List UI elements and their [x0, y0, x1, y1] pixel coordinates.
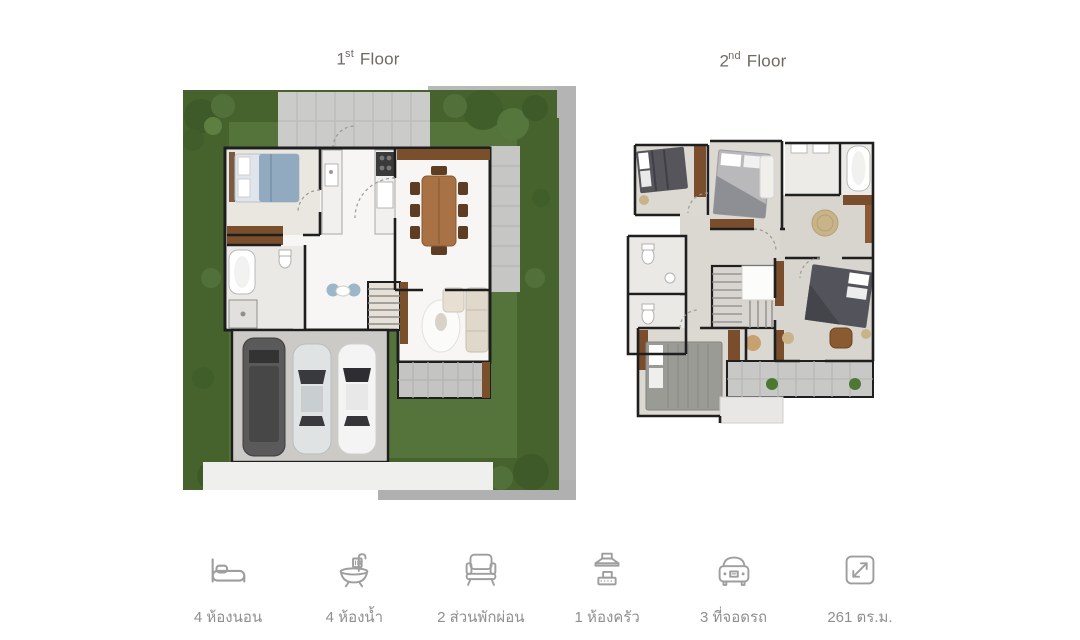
feature-parking: 3 ที่จอดรถ: [673, 547, 795, 629]
car-white: [338, 344, 376, 454]
second-floor-plan-drawing: [620, 138, 878, 433]
stairs-2f: [712, 266, 778, 328]
sofa-icon: [458, 547, 504, 593]
bathroom-2f-a: [628, 236, 686, 294]
lower-terrace: [720, 397, 783, 423]
hall-chair: [745, 335, 761, 351]
first-floor-suffix: st: [345, 48, 354, 60]
terrace: [398, 362, 490, 398]
bedroom-1: [227, 150, 320, 235]
feature-label: 4 ห้องน้ำ: [326, 605, 383, 629]
feature-label: 2 ส่วนพักผ่อน: [437, 605, 524, 629]
driveway-apron: [203, 462, 493, 490]
floorplan-page: 1st Floor 2nd Floor: [0, 0, 1080, 640]
feature-area: 261 ตร.ม.: [799, 547, 921, 629]
feature-row: 4 ห้องนอน 4 ห้องน้ำ: [167, 547, 921, 629]
bedroom-3: [710, 141, 782, 229]
kitchen-hood-icon: [584, 547, 630, 593]
top-driveway: [278, 92, 430, 150]
bathroom-1f: [227, 236, 305, 329]
second-floor-word: Floor: [747, 52, 787, 71]
first-floor-plan: [183, 78, 576, 502]
bedroom-2: [635, 145, 708, 215]
first-floor-title: 1st Floor: [336, 49, 399, 70]
car-van: [243, 338, 285, 456]
bathroom-2f-master: [785, 143, 873, 195]
first-floor-plan-drawing: [183, 78, 576, 502]
second-floor-title: 2nd Floor: [720, 51, 787, 72]
bed-icon: [205, 547, 251, 593]
feature-bathrooms: 4 ห้องน้ำ: [293, 547, 415, 629]
master-bedroom: [775, 258, 874, 361]
side-walkway: [490, 146, 520, 292]
balcony: [720, 361, 873, 423]
first-floor-word: Floor: [360, 50, 400, 69]
plant: [849, 378, 861, 390]
feature-living: 2 ส่วนพักผ่อน: [420, 547, 542, 629]
feature-label: 1 ห้องครัว: [575, 605, 640, 629]
feature-bedrooms: 4 ห้องนอน: [167, 547, 289, 629]
car-silver: [293, 344, 331, 454]
bath-icon: [331, 547, 377, 593]
second-floor-plan: [620, 138, 878, 433]
feature-kitchen: 1 ห้องครัว: [546, 547, 668, 629]
garage: [232, 330, 388, 462]
second-floor-suffix: nd: [728, 50, 741, 62]
plant: [766, 378, 778, 390]
area-icon: [837, 547, 883, 593]
car-icon: [711, 547, 757, 593]
feature-label: 3 ที่จอดรถ: [700, 605, 767, 629]
feature-label: 261 ตร.ม.: [827, 605, 892, 629]
feature-label: 4 ห้องนอน: [194, 605, 262, 629]
